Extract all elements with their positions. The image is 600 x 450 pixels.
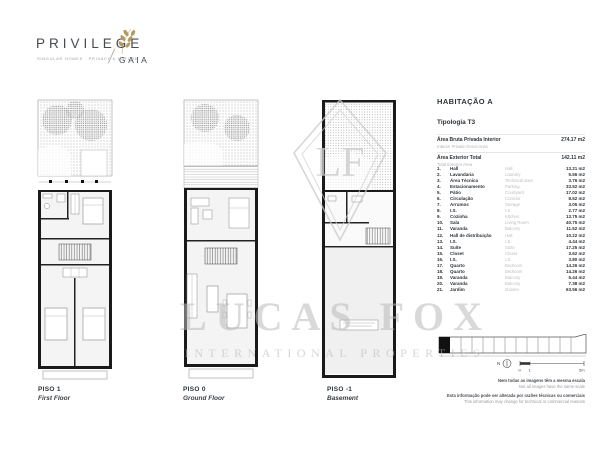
floor-label: PISO -1 [327, 386, 358, 393]
room-name-pt: Suíte [450, 245, 505, 250]
room-name-en: I.S. [505, 239, 553, 244]
room-number: 2. [437, 172, 450, 177]
room-number: 20. [437, 281, 450, 286]
room-name-en: Balcony [505, 226, 553, 231]
room-number: 21. [437, 287, 450, 292]
room-name-pt: Circulação [450, 196, 505, 201]
floorplan-ground-floor [183, 98, 259, 380]
room-name-pt: Pátio [450, 190, 505, 195]
garage-note-box [340, 320, 378, 330]
room-area: 17.02 m2 [553, 190, 585, 195]
room-name-en: Courtyard [505, 190, 553, 195]
north-and-scale: N 0 1 5m [496, 356, 588, 374]
room-number: 16. [437, 257, 450, 262]
drawing-sheet: PRIVILEGE SINGULAR HOMES · PRIVACY & NAT… [0, 0, 600, 450]
room-number: 10. [437, 220, 450, 225]
leaf-branch-icon [107, 26, 137, 56]
room-number: 4. [437, 184, 450, 189]
floor-label: PISO 0 [183, 386, 225, 393]
room-name-pt: Sala [450, 220, 505, 225]
floor-sublabel: First Floor [38, 395, 70, 402]
room-name-pt: Quarto [450, 269, 505, 274]
site-plan-strip [437, 334, 589, 358]
room-area: 2.77 m2 [553, 208, 585, 213]
room-name-pt: Cozinha [450, 214, 505, 219]
room-name-pt: Closet [450, 251, 505, 256]
room-number: 15. [437, 251, 450, 256]
room-name-en: I.S. [505, 208, 553, 213]
summary-label-en: Interior Private Gross Area [437, 144, 501, 149]
floorplan-first-floor [37, 98, 113, 380]
floor-label-piso-1: PISO -1 Basement [327, 386, 358, 402]
room-name-en: Bedroom [505, 263, 553, 268]
room-area: 3.62 m2 [553, 251, 585, 256]
room-area: 3.05 m2 [553, 202, 585, 207]
scale-tick-0: 0 [519, 368, 522, 373]
room-name-pt: Arrumos [450, 202, 505, 207]
summary-label-pt: Área Bruta Privada Interior [437, 137, 501, 143]
scale-tick-5m: 5m [579, 368, 585, 373]
room-name-en: Parking [505, 184, 553, 189]
unit-typology: Tipologia T3 [437, 119, 475, 126]
disclaimer-note: Esta informação pode ser alterada por ra… [365, 393, 585, 404]
room-area: 33.52 m2 [553, 184, 585, 189]
floor-sublabel: Basement [327, 395, 358, 402]
room-name-pt: Hall de distribuição [450, 233, 505, 238]
room-area: 7.38 m2 [553, 281, 585, 286]
area-summary: Área Bruta Privada Interior Interior Pri… [437, 134, 585, 170]
room-name-en: Kitchen [505, 214, 553, 219]
room-area: 4.44 m2 [553, 239, 585, 244]
room-name-en: Balcony [505, 275, 553, 280]
room-name-pt: Varanda [450, 226, 505, 231]
scale-note: Nem todas as imagens têm a mesma escala … [365, 378, 585, 389]
room-number: 13. [437, 239, 450, 244]
north-label: N [497, 361, 500, 366]
room-name-en: Laundry [505, 172, 553, 177]
room-number: 1. [437, 166, 450, 171]
room-name-en: Storage [505, 202, 553, 207]
room-area: 63.56 m2 [553, 287, 585, 292]
disclaimer-note-en: This information may change for technica… [365, 399, 585, 404]
room-name-pt: I.S. [450, 208, 505, 213]
room-name-pt: Quarto [450, 263, 505, 268]
room-name-en: Living Room [505, 220, 553, 225]
scale-note-pt: Nem todas as imagens têm a mesma escala [365, 378, 585, 383]
summary-value: 274.17 m2 [561, 137, 585, 149]
room-area: 17.25 m2 [553, 245, 585, 250]
brand-sub-name: GAIA [119, 55, 149, 65]
room-table: 1. Hall Hall 13.21 m2 2. Lavandaria Laun… [437, 166, 585, 293]
room-number: 5. [437, 190, 450, 195]
room-name-pt: I.S. [450, 239, 505, 244]
room-name-en: Bedroom [505, 269, 553, 274]
room-name-pt: Varanda [450, 275, 505, 280]
room-name-pt: Jardim [450, 287, 505, 292]
room-number: 18. [437, 269, 450, 274]
room-area: 11.52 m2 [553, 226, 585, 231]
summary-label-pt: Área Exterior Total [437, 155, 481, 161]
unit-title: HABITAÇÃO A [437, 97, 493, 106]
room-name-en: Hall [505, 233, 553, 238]
scale-tick-1: 1 [529, 368, 532, 373]
room-name-en: Hall [505, 166, 553, 171]
room-name-pt: Estacionamento [450, 184, 505, 189]
room-area: 14.26 m2 [553, 263, 585, 268]
floorplan-basement [322, 98, 396, 380]
area-summary-row: Área Bruta Privada Interior Interior Pri… [437, 134, 585, 152]
room-area: 13.75 m2 [553, 214, 585, 219]
room-name-en: I.S. [505, 257, 553, 262]
room-number: 11. [437, 226, 450, 231]
floor-sublabel: Ground Floor [183, 395, 225, 402]
scale-note-en: Not all images have the same scale [365, 384, 585, 389]
room-name-en: Closet [505, 251, 553, 256]
room-name-en: Technical area [505, 178, 553, 183]
room-number: 14. [437, 245, 450, 250]
room-name-pt: Área Técnica [450, 178, 505, 183]
room-area: 40.75 m2 [553, 220, 585, 225]
room-number: 12. [437, 233, 450, 238]
room-row: 21. Jardim Garden 63.56 m2 [437, 287, 585, 293]
room-number: 9. [437, 214, 450, 219]
room-name-en: Suite [505, 245, 553, 250]
room-area: 3.80 m2 [553, 257, 585, 262]
room-area: 10.22 m2 [553, 233, 585, 238]
room-name-en: Corridor [505, 196, 553, 201]
room-area: 5.56 m2 [553, 172, 585, 177]
room-name-pt: Hall [450, 166, 505, 171]
room-name-en: Garden [505, 287, 553, 292]
room-number: 7. [437, 202, 450, 207]
room-name-en: Balcony [505, 281, 553, 286]
floor-label-piso0: PISO 0 Ground Floor [183, 386, 225, 402]
room-number: 19. [437, 275, 450, 280]
room-area: 8.52 m2 [553, 196, 585, 201]
floor-label: PISO 1 [38, 386, 70, 393]
floor-label-piso1: PISO 1 First Floor [38, 386, 70, 402]
room-area: 13.21 m2 [553, 166, 585, 171]
room-area: 14.26 m2 [553, 269, 585, 274]
room-area: 3.76 m2 [553, 178, 585, 183]
room-number: 6. [437, 196, 450, 201]
room-number: 3. [437, 178, 450, 183]
room-area: 5.44 m2 [553, 275, 585, 280]
room-number: 17. [437, 263, 450, 268]
room-name-pt: I.S. [450, 257, 505, 262]
room-name-pt: Lavandaria [450, 172, 505, 177]
room-number: 8. [437, 208, 450, 213]
disclaimer-note-pt: Esta informação pode ser alterada por ra… [365, 393, 585, 398]
room-name-pt: Varanda [450, 281, 505, 286]
